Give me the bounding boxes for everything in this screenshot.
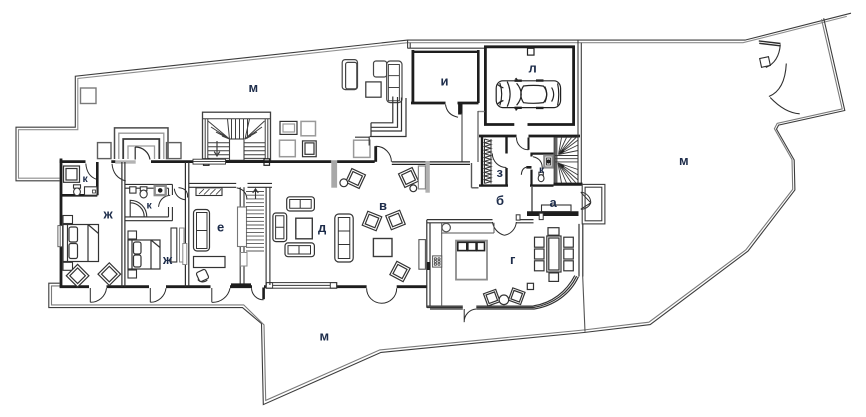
svg-text:г: г: [510, 252, 516, 267]
svg-text:л: л: [529, 61, 537, 76]
svg-text:б: б: [496, 193, 504, 208]
svg-text:м: м: [679, 153, 689, 168]
svg-text:м: м: [320, 329, 330, 344]
svg-text:а: а: [550, 195, 558, 210]
svg-text:з: з: [497, 165, 504, 180]
svg-text:в: в: [379, 198, 387, 213]
svg-text:м: м: [249, 80, 259, 95]
svg-text:к: к: [83, 173, 89, 185]
svg-text:к: к: [539, 164, 545, 176]
svg-text:д: д: [318, 220, 327, 235]
svg-text:ж: ж: [162, 252, 173, 267]
svg-text:к: к: [147, 200, 153, 212]
svg-text:ж: ж: [103, 207, 114, 222]
svg-text:и: и: [441, 74, 449, 89]
svg-text:е: е: [217, 220, 224, 235]
